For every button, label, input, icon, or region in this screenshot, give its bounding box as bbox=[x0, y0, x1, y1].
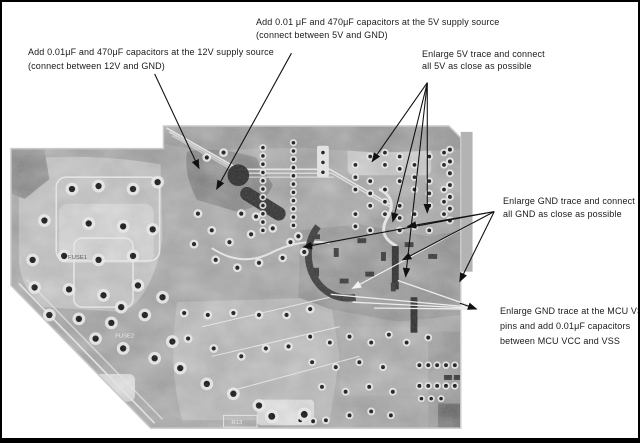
annotation-line: pins and add 0.01μF capacitors bbox=[500, 319, 640, 334]
annotation-line: all GND as close as possible bbox=[503, 208, 635, 221]
figure-frame: FUSE1 FUSE2 R13 bbox=[0, 0, 640, 443]
annotation-line: between MCU VCC and VSS bbox=[500, 334, 640, 349]
annotation-line: Enlarge GND trace at the MCU VSS bbox=[500, 304, 640, 319]
annotation-gnd-trace: Enlarge GND trace and connect all GND as… bbox=[503, 195, 635, 221]
annotation-mcu-vss: Enlarge GND trace at the MCU VSS pins an… bbox=[500, 304, 640, 349]
annotation-5v-capacitors: Add 0.01 μF and 470μF capacitors at the … bbox=[256, 16, 499, 42]
annotation-line: (connect between 5V and GND) bbox=[256, 29, 499, 42]
annotation-line: Enlarge GND trace and connect bbox=[503, 195, 635, 208]
annotation-line: (connect between 12V and GND) bbox=[28, 59, 274, 73]
annotation-5v-trace: Enlarge 5V trace and connect all 5V as c… bbox=[422, 48, 545, 72]
board-shadow bbox=[461, 132, 473, 272]
annotation-line: all 5V as close as possible bbox=[422, 60, 545, 72]
annotation-12v-capacitors: Add 0.01μF and 470μF capacitors at the 1… bbox=[28, 45, 274, 73]
annotation-line: Add 0.01 μF and 470μF capacitors at the … bbox=[256, 16, 499, 29]
annotation-line: Enlarge 5V trace and connect bbox=[422, 48, 545, 60]
annotation-line: Add 0.01μF and 470μF capacitors at the 1… bbox=[28, 45, 274, 59]
